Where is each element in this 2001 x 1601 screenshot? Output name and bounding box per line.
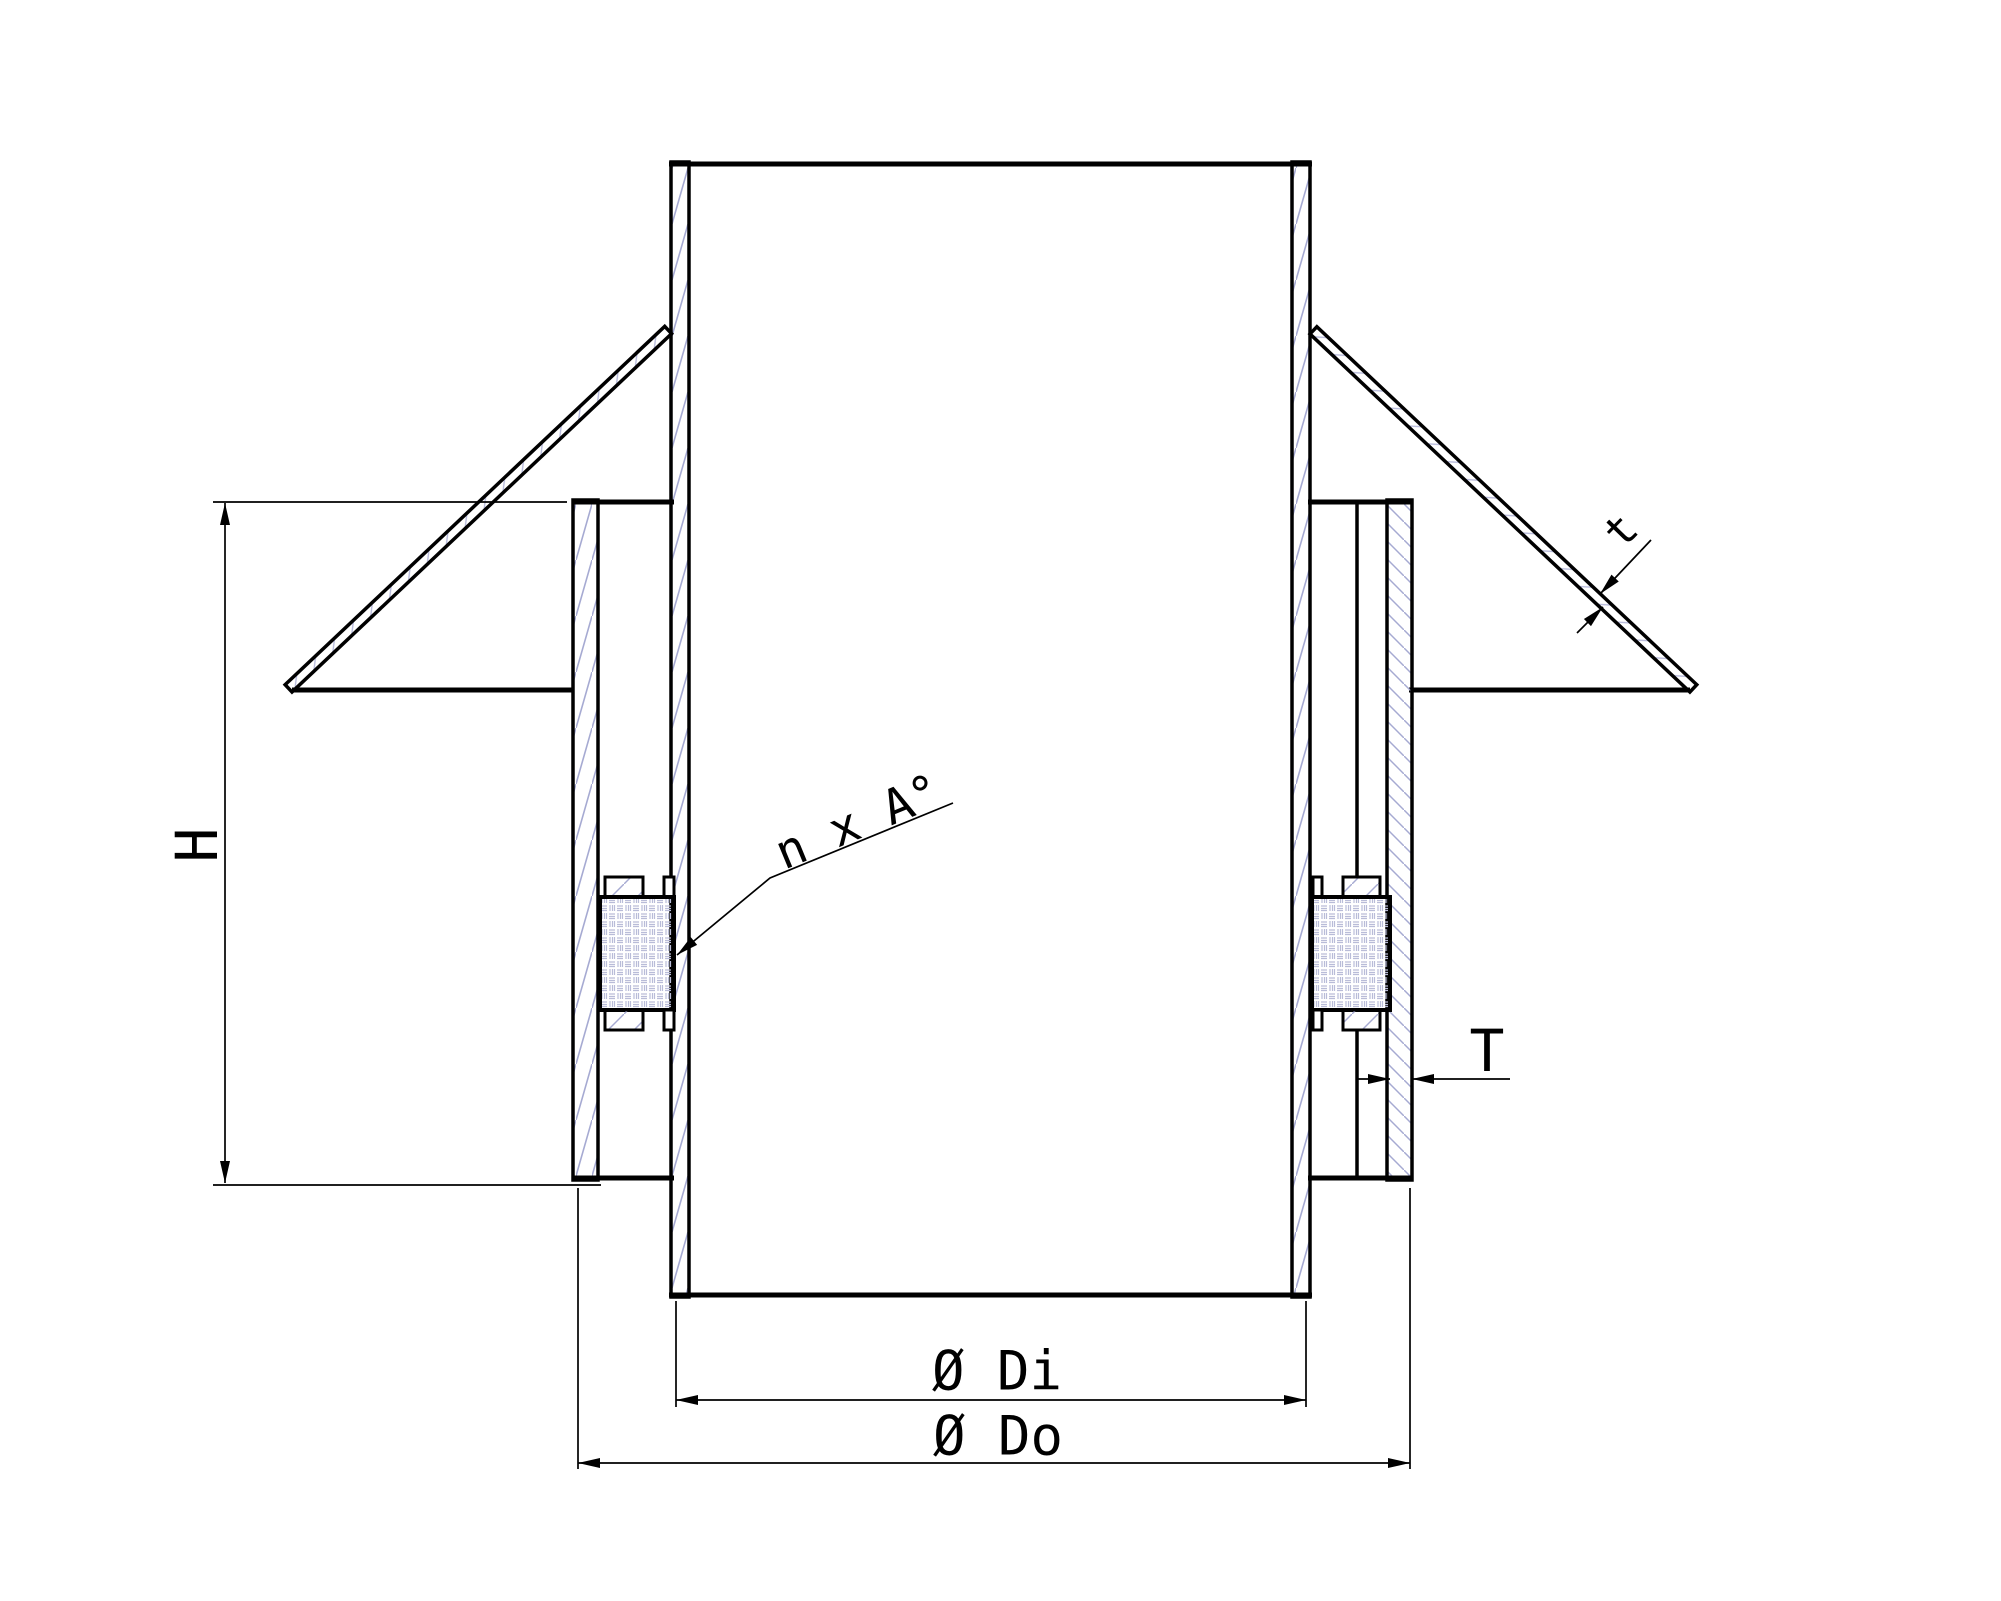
label-collar-thickness: T <box>1470 1017 1505 1085</box>
dimension-H <box>213 502 601 1185</box>
pipe-section <box>669 162 1312 1297</box>
flashing-cone <box>285 326 1697 692</box>
dim-Do-arrow-right <box>1388 1458 1410 1468</box>
label-outer-diameter: Ø Do <box>933 1405 1063 1468</box>
technical-drawing: H Ø Di Ø Do T t n x A° <box>0 0 2001 1601</box>
spacer-left-tab-top-inner <box>664 877 674 897</box>
spacer-left-tab-top-outer <box>605 877 643 897</box>
label-inner-diameter: Ø Di <box>932 1340 1062 1403</box>
spacer-left-block <box>600 897 674 1010</box>
label-height: H <box>163 828 231 863</box>
collar-right <box>1308 500 1412 1180</box>
spacer-right-block <box>1312 897 1390 1010</box>
dim-H-arrow-down <box>220 1161 230 1183</box>
dim-Di-arrow-left <box>676 1395 698 1405</box>
collar-right-wall <box>1387 500 1412 1180</box>
dim-H-arrow-up <box>220 503 230 525</box>
cone-left-sheet <box>285 326 671 692</box>
spacer-right-tab-bottom-inner <box>1313 1010 1322 1030</box>
spacer-left-tab-bottom-inner <box>664 1010 674 1030</box>
label-angle-note: n x A° <box>767 763 949 881</box>
spacer-right-tab-bottom-outer <box>1343 1010 1380 1030</box>
dim-Di-arrow-right <box>1284 1395 1306 1405</box>
label-flashing-thickness: t <box>1593 504 1648 558</box>
spacer-left <box>600 877 674 1030</box>
dim-T-arrow-right <box>1412 1074 1434 1084</box>
dim-Do-arrow-left <box>578 1458 600 1468</box>
spacer-right <box>1312 877 1390 1030</box>
drawing-canvas: H Ø Di Ø Do T t n x A° <box>0 0 2001 1601</box>
spacer-right-tab-top-outer <box>1343 877 1380 897</box>
spacer-right-tab-top-inner <box>1313 877 1322 897</box>
pipe-right-wall <box>1292 162 1310 1297</box>
cone-right-sheet <box>1310 327 1697 692</box>
spacer-left-tab-bottom-outer <box>605 1010 643 1030</box>
collar-left <box>573 500 674 1180</box>
pipe-left-wall <box>671 162 689 1297</box>
collar-left-wall <box>573 500 598 1180</box>
